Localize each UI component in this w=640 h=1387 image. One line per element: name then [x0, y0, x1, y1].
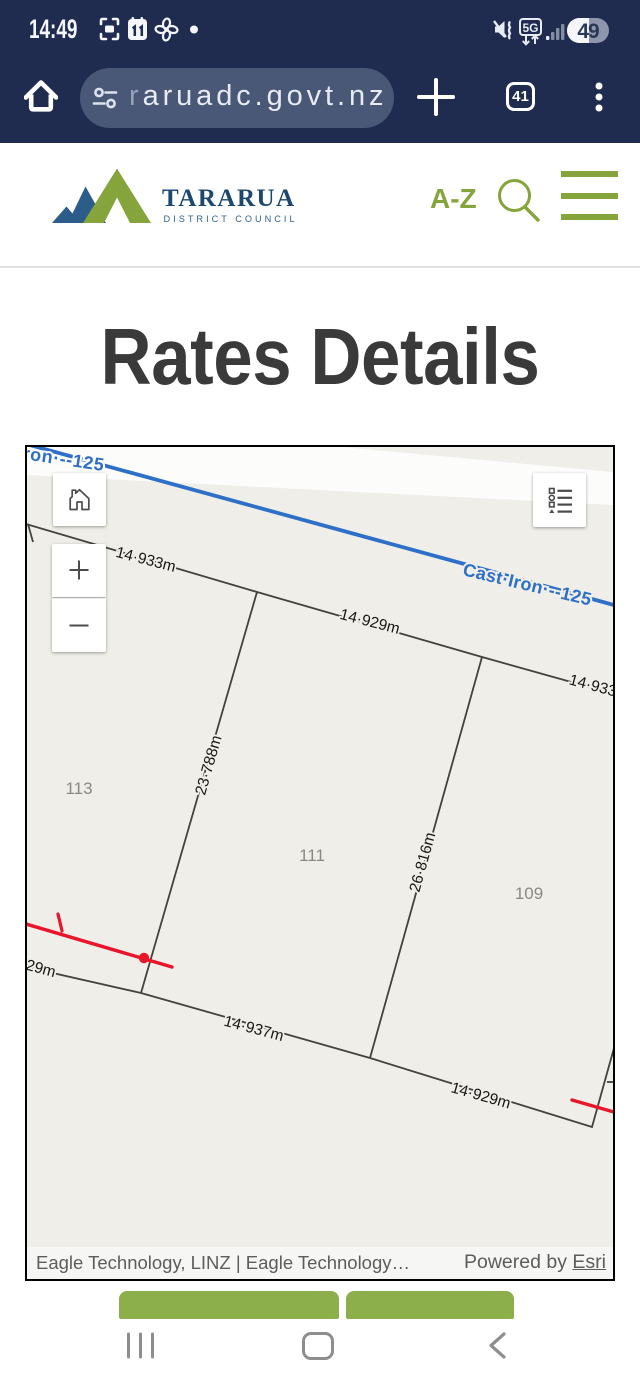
- svg-text:29m: 29m: [27, 957, 58, 981]
- svg-text:Cast·Iron·--125: Cast·Iron·--125: [461, 559, 594, 609]
- svg-text:111: 111: [299, 846, 325, 865]
- svg-text:113: 113: [65, 779, 92, 798]
- svg-text:5G: 5G: [522, 21, 538, 35]
- svg-text:49: 49: [577, 20, 599, 43]
- svg-text:26·816m: 26·816m: [407, 831, 440, 895]
- svg-text:DISTRICT COUNCIL: DISTRICT COUNCIL: [164, 214, 298, 224]
- svg-text:14·933m: 14·933m: [114, 544, 177, 576]
- svg-text:109: 109: [515, 884, 543, 903]
- svg-text:14·937m: 14·937m: [222, 1013, 286, 1045]
- svg-text:23·788m: 23·788m: [192, 734, 225, 798]
- svg-text:14·929m: 14·929m: [449, 1079, 513, 1112]
- svg-text:TARARUA: TARARUA: [162, 185, 296, 212]
- svg-text:14·929m: 14·929m: [338, 606, 401, 638]
- svg-text:14·933: 14·933: [567, 672, 613, 701]
